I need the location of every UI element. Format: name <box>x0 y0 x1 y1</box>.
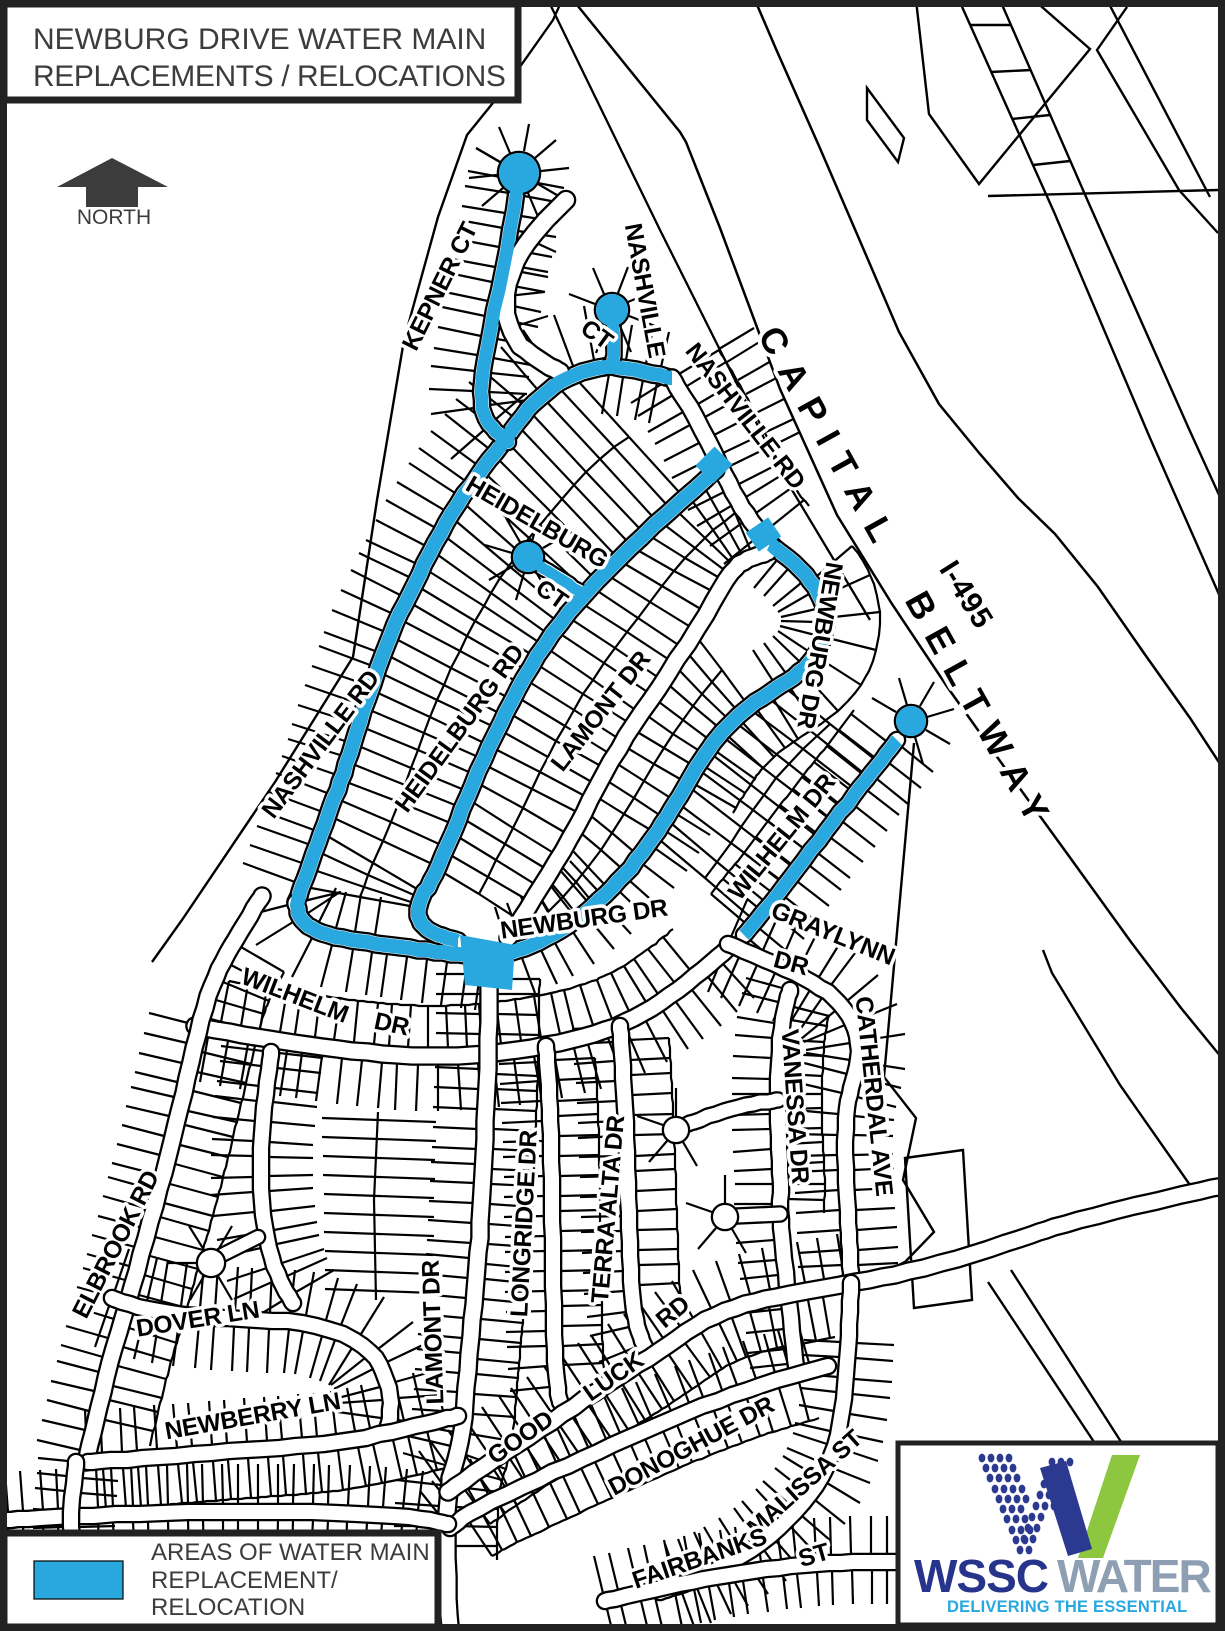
svg-text:REPLACEMENTS / RELOCATIONS: REPLACEMENTS / RELOCATIONS <box>33 60 505 93</box>
svg-text:AREAS OF WATER MAIN: AREAS OF WATER MAIN <box>151 1539 430 1566</box>
svg-text:DELIVERING THE ESSENTIAL: DELIVERING THE ESSENTIAL <box>947 1598 1187 1616</box>
svg-text:WSSC: WSSC <box>914 1550 1048 1602</box>
svg-text:REPLACEMENT/: REPLACEMENT/ <box>151 1567 338 1594</box>
svg-text:RELOCATION: RELOCATION <box>151 1594 305 1621</box>
svg-text:NORTH: NORTH <box>77 206 151 229</box>
svg-text:LAMONT DR: LAMONT DR <box>417 1259 449 1405</box>
svg-text:WATER: WATER <box>1057 1550 1211 1602</box>
svg-text:NEWBURG DRIVE WATER MAIN: NEWBURG DRIVE WATER MAIN <box>33 23 486 56</box>
